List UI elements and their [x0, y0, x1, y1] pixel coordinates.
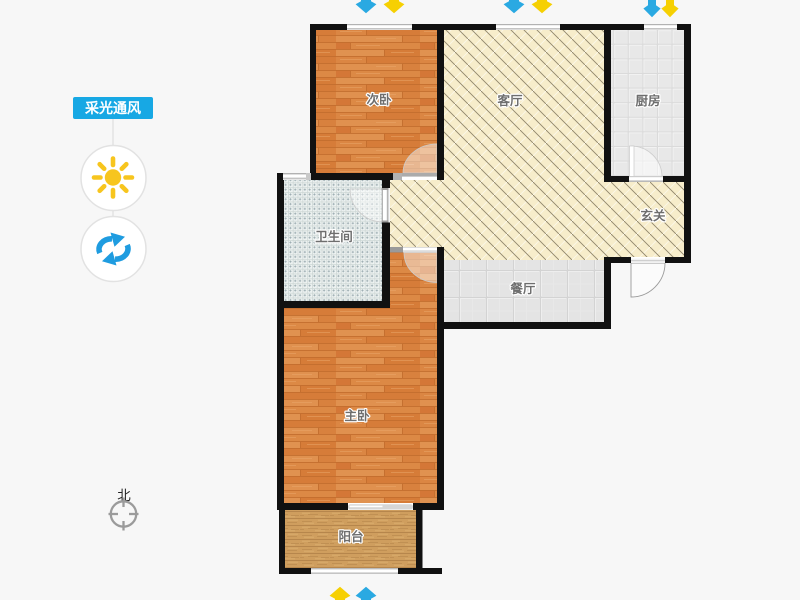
svg-text:次卧: 次卧	[366, 92, 392, 107]
svg-text:客厅: 客厅	[496, 93, 523, 108]
svg-text:采光通风: 采光通风	[84, 100, 141, 116]
svg-text:厨房: 厨房	[635, 93, 660, 108]
svg-text:玄关: 玄关	[640, 208, 666, 223]
svg-text:卫生间: 卫生间	[315, 229, 353, 244]
svg-text:餐厅: 餐厅	[509, 281, 536, 296]
svg-text:阳台: 阳台	[338, 529, 363, 544]
svg-text:主卧: 主卧	[344, 408, 370, 423]
